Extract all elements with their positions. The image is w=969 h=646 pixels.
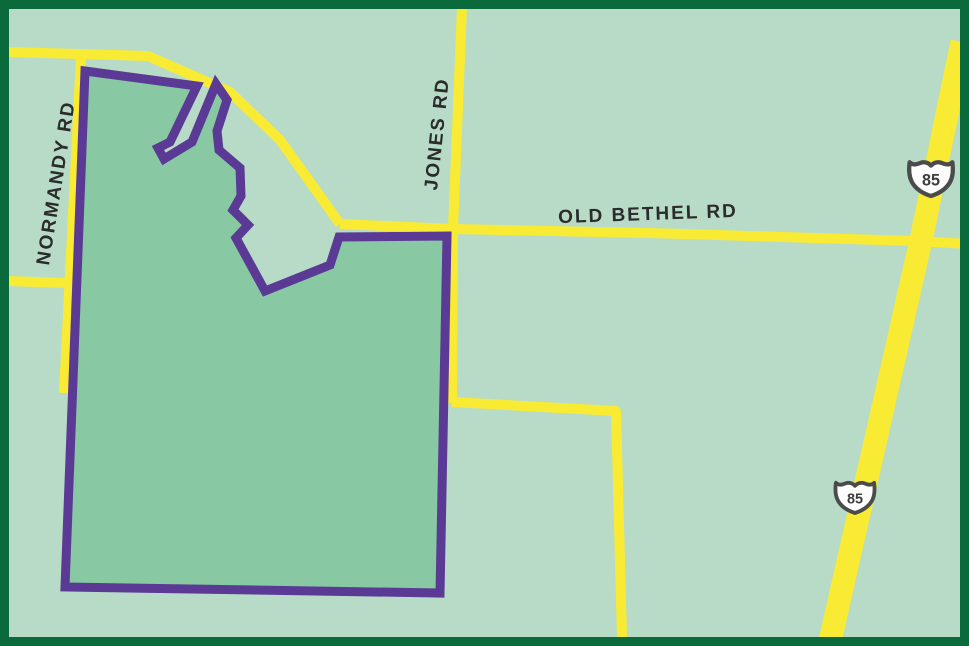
parcel-map: 8585 NORMANDY RD JONES RD OLD BETHEL RD <box>0 0 969 646</box>
normandy-stub <box>7 281 66 283</box>
map-canvas: 8585 <box>0 0 969 646</box>
route-shield-number: 85 <box>847 492 863 508</box>
route-shield-number: 85 <box>922 172 940 190</box>
